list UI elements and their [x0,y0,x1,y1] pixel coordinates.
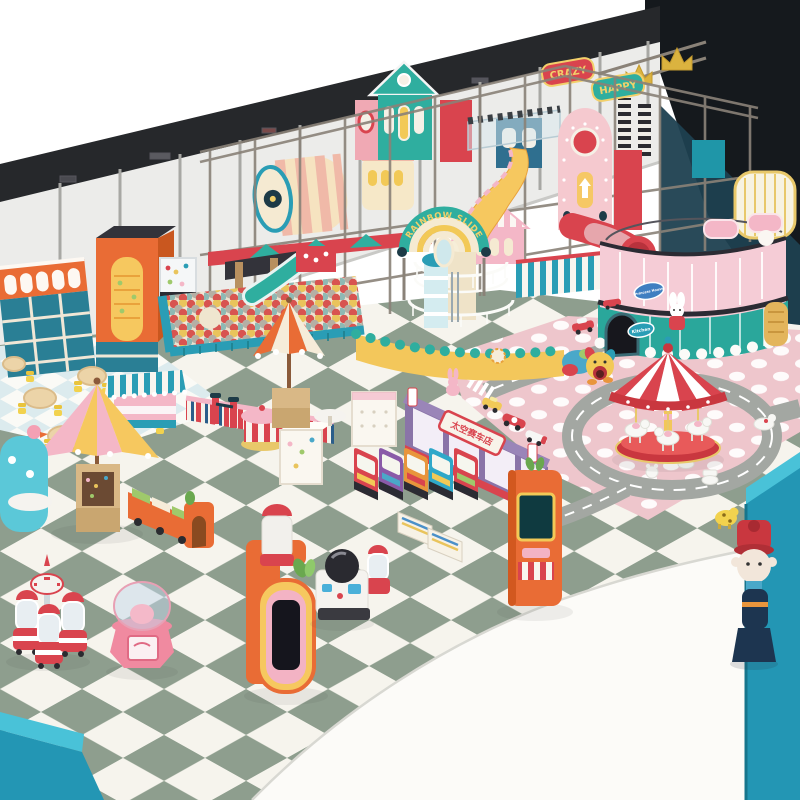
arrow-marquee [577,172,593,208]
marquee-clock-badge [572,129,598,155]
climbing-wall [110,256,144,342]
carrot-screen [272,600,300,670]
pegboard-cabinet [352,392,396,446]
kiosk-screen [518,494,554,540]
flamingo-head [27,425,41,439]
gold-ladder [764,302,788,346]
red-tower [614,150,642,230]
zebra-roller-column [618,98,631,150]
small-rocket [366,545,390,594]
zebra-roller-column-2 [638,104,651,156]
nutcracker-body [742,589,768,629]
red-block [440,100,472,162]
rocket-pod-3 [59,592,87,657]
scene-svg: CRAZY HAPPY [0,0,800,800]
teal-block [692,140,725,178]
gear-decoration [491,349,505,363]
rocket-pod-2 [35,604,63,669]
cactus-decor [185,491,195,505]
nutcracker-head [737,549,771,583]
rocket-behind-carrot [260,504,294,566]
cream-arch-tower [362,155,414,210]
end-tag [408,388,417,406]
orange-vending-kiosk [497,456,573,621]
big-beige-ball [199,307,221,329]
pink-arch-tower [558,108,612,230]
playground-render: CRAZY HAPPY [0,0,800,800]
